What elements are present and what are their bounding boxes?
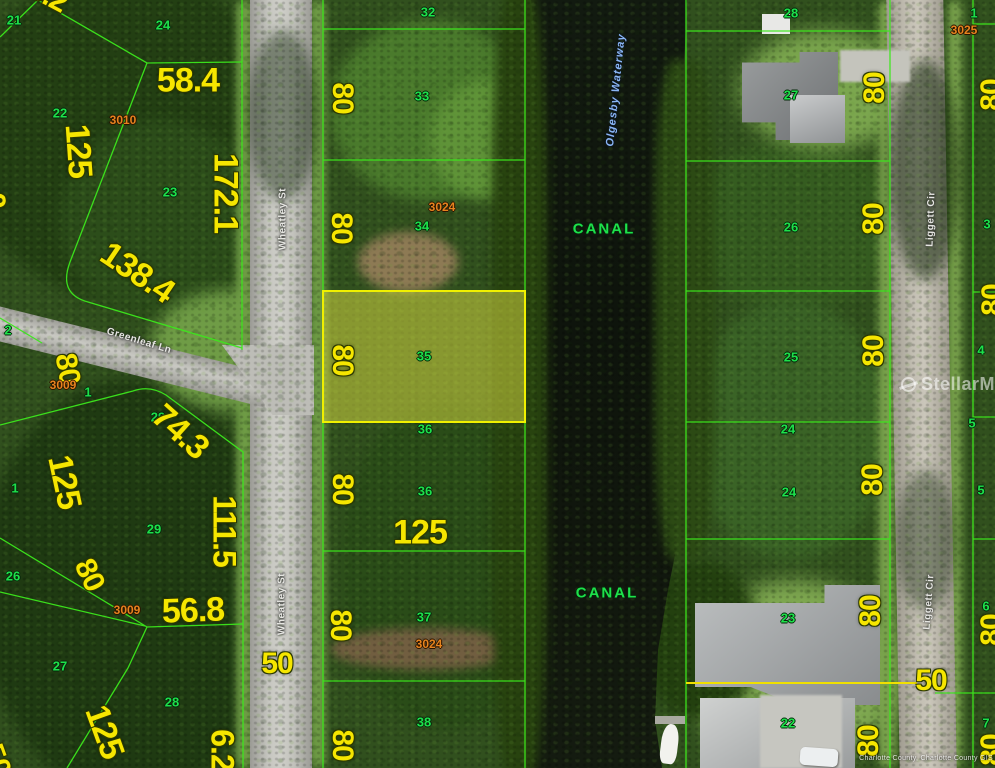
lot-number-34: 34 <box>415 219 429 234</box>
lot-number-3: 3 <box>983 217 990 232</box>
lot-number-33: 33 <box>415 89 429 104</box>
dimension-label: 172.1 <box>206 153 245 233</box>
canal-bank-trees <box>655 60 715 560</box>
canal-label: CANAL <box>573 221 636 238</box>
lot-number-1: 1 <box>84 385 91 400</box>
dimension-label: 125 <box>57 123 100 179</box>
street-name: Wheatley St <box>278 188 289 250</box>
lot-number-23: 23 <box>781 611 795 626</box>
lot-number-5: 5 <box>977 483 984 498</box>
dimension-label: 80 <box>976 284 995 315</box>
lot-number-24: 24 <box>156 18 170 33</box>
dimension-label: 80 <box>857 335 891 366</box>
lot-number-6: 6 <box>982 599 989 614</box>
lot-number-36: 36 <box>418 484 432 499</box>
dimension-label: 80 <box>854 595 888 626</box>
dimension-label: 50 <box>261 647 292 681</box>
parcel-id-3025: 3025 <box>951 23 978 37</box>
dimension-label: 50 <box>915 664 946 698</box>
dimension-label: 80 <box>323 609 357 640</box>
dimension-label: 6.2 <box>204 729 241 768</box>
watermark-text: StellarMLS <box>921 374 995 395</box>
dimension-label: 80 <box>325 473 359 504</box>
dimension-label: 58.4 <box>157 62 219 101</box>
lot-number-23: 23 <box>163 185 177 200</box>
dock <box>655 716 685 724</box>
lot-number-21: 21 <box>7 13 21 28</box>
parcel-id-3009: 3009 <box>50 378 77 392</box>
dimension-label: 80 <box>325 729 359 760</box>
stellar-mls-logo-icon <box>901 377 916 392</box>
lot-number-24: 24 <box>781 422 795 437</box>
aerial-parcel-map: 2124222321291292627283233343536363738282… <box>0 0 995 768</box>
lot-number-22: 22 <box>53 106 67 121</box>
lot-number-27: 27 <box>784 88 798 103</box>
dimension-label: 80 <box>324 212 358 243</box>
lot-number-4: 4 <box>977 343 984 358</box>
parcel-id-3024: 3024 <box>416 637 443 651</box>
dimension-label: 80 <box>975 614 995 645</box>
lot-number-29: 29 <box>147 522 161 537</box>
dimension-label: 80 <box>857 203 891 234</box>
dirt-patch <box>358 232 458 292</box>
canal-label: CANAL <box>576 585 639 602</box>
dimension-label: 56.8 <box>161 590 225 631</box>
dimension-label: 0 <box>0 192 11 208</box>
lot-number-7: 7 <box>982 716 989 731</box>
lot-number-28: 28 <box>784 6 798 21</box>
stellar-mls-watermark: StellarMLS <box>901 374 995 395</box>
lot-number-37: 37 <box>417 610 431 625</box>
lot-number-28: 28 <box>165 695 179 710</box>
tree-shadow <box>248 30 318 200</box>
lot-number-32: 32 <box>421 5 435 20</box>
dimension-label: 80 <box>852 725 886 756</box>
lot-number-1: 1 <box>11 481 18 496</box>
dimension-label: 50 <box>0 739 17 768</box>
parcel-id-3009: 3009 <box>114 603 141 617</box>
lot-number-25: 25 <box>784 350 798 365</box>
lot-number-2: 2 <box>4 323 11 338</box>
tree-shadow <box>890 60 960 280</box>
street-name: Wheatley St <box>277 573 288 635</box>
boat <box>659 723 681 765</box>
dimension-label: 111.5 <box>206 495 243 567</box>
lot-number-35: 35 <box>417 349 431 364</box>
lot-number-26: 26 <box>6 569 20 584</box>
lot-number-22: 22 <box>781 716 795 731</box>
lot-number-36: 36 <box>418 422 432 437</box>
canal-bank-trees <box>492 0 547 768</box>
dimension-label: 125 <box>393 514 447 553</box>
lot-number-24: 24 <box>782 485 796 500</box>
street-name: Liggett Cir <box>925 191 938 247</box>
house-roof-large <box>695 585 880 705</box>
house-roof-wing <box>790 95 845 143</box>
lot-number-27: 27 <box>53 659 67 674</box>
car <box>799 747 838 768</box>
dimension-label: 80 <box>858 72 892 103</box>
dimension-label: 80 <box>856 464 890 495</box>
lot-number-26: 26 <box>784 220 798 235</box>
lot-number-1: 1 <box>970 6 977 21</box>
lot-number-38: 38 <box>417 715 431 730</box>
parcel-id-3010: 3010 <box>110 113 137 127</box>
lot-number-5: 5 <box>968 416 975 431</box>
parcel-id-3024: 3024 <box>429 200 456 214</box>
map-attribution: Charlotte County, Charlotte County GIS <box>859 755 993 762</box>
dimension-label: 80 <box>975 79 995 110</box>
dimension-label: 80 <box>325 344 359 375</box>
dimension-label: 80 <box>325 82 359 113</box>
